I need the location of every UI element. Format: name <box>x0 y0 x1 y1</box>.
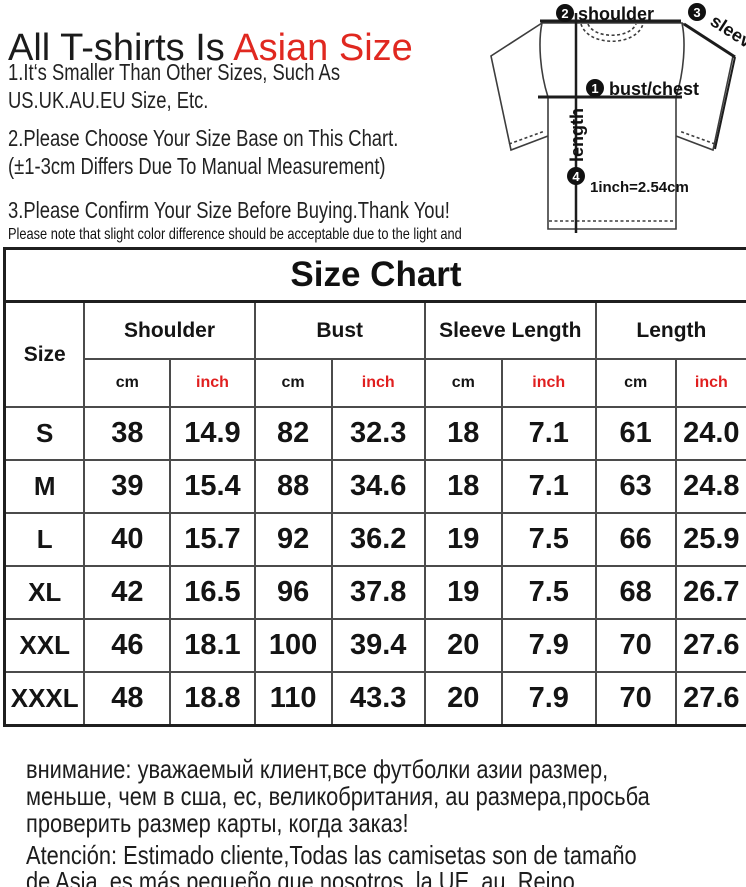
data-cell: 27.6 <box>676 672 746 724</box>
unit-inch-header: inch <box>170 359 254 407</box>
note-2: 2.Please Choose Your Size Base on This C… <box>8 124 488 180</box>
size-row-xxxl: XXXL 48 18.8 110 43.3 20 7.9 70 27.6 <box>6 672 746 724</box>
data-cell: 18 <box>425 407 502 460</box>
data-cell: 18 <box>425 460 502 513</box>
data-cell: 18.1 <box>170 619 254 672</box>
data-cell: 25.9 <box>676 513 746 566</box>
data-cell: 24.8 <box>676 460 746 513</box>
unit-cm-header: cm <box>425 359 502 407</box>
size-row-s: S 38 14.9 82 32.3 18 7.1 61 24.0 <box>6 407 746 460</box>
data-cell: 46 <box>84 619 170 672</box>
data-cell: 19 <box>425 566 502 619</box>
size-chart-title: Size Chart <box>6 250 746 303</box>
unit-cm-header: cm <box>596 359 676 407</box>
shoulder-group-header: Shoulder <box>84 303 254 359</box>
inch-conversion-note: 1inch=2.54cm <box>590 179 689 196</box>
data-cell: 7.1 <box>502 407 596 460</box>
callout-4-number: 4 <box>572 169 580 184</box>
size-chart-box: Size Chart Size Shoulder Bust Sleeve Len… <box>3 247 746 727</box>
bust-group-header: Bust <box>255 303 425 359</box>
data-cell: 48 <box>84 672 170 724</box>
sleeve-length-group-header: Sleeve Length <box>425 303 596 359</box>
data-cell: 40 <box>84 513 170 566</box>
data-cell: 66 <box>596 513 676 566</box>
data-cell: 43.3 <box>332 672 425 724</box>
data-cell: 19 <box>425 513 502 566</box>
data-cell: 42 <box>84 566 170 619</box>
tshirt-diagram-drawing: 2 shoulder 3 sleeve 1 bust/chest 4 lengt… <box>478 0 746 243</box>
data-cell: 15.4 <box>170 460 254 513</box>
data-cell: 100 <box>255 619 332 672</box>
size-column-header: Size <box>6 303 84 407</box>
callout-2-number: 2 <box>561 6 568 21</box>
size-chart-infographic: All T-shirts Is Asian Size 1.It‘s Smalle… <box>0 0 746 887</box>
data-cell: 7.5 <box>502 566 596 619</box>
size-row-l: L 40 15.7 92 36.2 19 7.5 66 25.9 <box>6 513 746 566</box>
note-1: 1.It‘s Smaller Than Other Sizes, Such As… <box>8 58 488 114</box>
data-cell: 20 <box>425 619 502 672</box>
data-cell: 18.8 <box>170 672 254 724</box>
tshirt-measurement-diagram: 2 shoulder 3 sleeve 1 bust/chest 4 lengt… <box>478 0 746 243</box>
data-cell: 7.9 <box>502 619 596 672</box>
size-label-cell: XXL <box>6 619 84 672</box>
unit-inch-header: inch <box>502 359 596 407</box>
length-label: length <box>567 108 587 162</box>
data-cell: 82 <box>255 407 332 460</box>
data-cell: 7.5 <box>502 513 596 566</box>
unit-cm-header: cm <box>84 359 170 407</box>
tshirt-outline <box>491 23 733 229</box>
data-cell: 34.6 <box>332 460 425 513</box>
data-cell: 36.2 <box>332 513 425 566</box>
size-row-xxl: XXL 46 18.1 100 39.4 20 7.9 70 27.6 <box>6 619 746 672</box>
length-group-header: Length <box>596 303 746 359</box>
unit-cm-header: cm <box>255 359 332 407</box>
unit-inch-header: inch <box>676 359 746 407</box>
data-cell: 27.6 <box>676 619 746 672</box>
size-label-cell: S <box>6 407 84 460</box>
data-cell: 26.7 <box>676 566 746 619</box>
data-cell: 15.7 <box>170 513 254 566</box>
spanish-notice: Atención: Estimado cliente,Todas las cam… <box>26 842 746 887</box>
data-cell: 16.5 <box>170 566 254 619</box>
data-cell: 68 <box>596 566 676 619</box>
size-row-xl: XL 42 16.5 96 37.8 19 7.5 68 26.7 <box>6 566 746 619</box>
data-cell: 96 <box>255 566 332 619</box>
data-cell: 14.9 <box>170 407 254 460</box>
data-cell: 37.8 <box>332 566 425 619</box>
note-3: 3.Please Confirm Your Size Before Buying… <box>8 196 488 224</box>
data-cell: 20 <box>425 672 502 724</box>
data-cell: 39 <box>84 460 170 513</box>
data-cell: 110 <box>255 672 332 724</box>
data-cell: 32.3 <box>332 407 425 460</box>
size-label-cell: XL <box>6 566 84 619</box>
data-cell: 38 <box>84 407 170 460</box>
callout-1-number: 1 <box>591 81 598 96</box>
bust-chest-label: bust/chest <box>609 79 699 99</box>
size-label-cell: XXXL <box>6 672 84 724</box>
shoulder-label: shoulder <box>578 4 654 24</box>
callout-3-number: 3 <box>693 5 700 20</box>
data-cell: 88 <box>255 460 332 513</box>
data-cell: 61 <box>596 407 676 460</box>
data-cell: 7.9 <box>502 672 596 724</box>
size-label-cell: M <box>6 460 84 513</box>
size-label-cell: L <box>6 513 84 566</box>
data-cell: 92 <box>255 513 332 566</box>
russian-notice: внимание: уважаемый клиент,все футболки … <box>26 756 746 837</box>
data-cell: 7.1 <box>502 460 596 513</box>
unit-inch-header: inch <box>332 359 425 407</box>
data-cell: 70 <box>596 619 676 672</box>
size-row-m: M 39 15.4 88 34.6 18 7.1 63 24.8 <box>6 460 746 513</box>
size-chart-table: Size Shoulder Bust Sleeve Length Length … <box>6 303 746 724</box>
data-cell: 39.4 <box>332 619 425 672</box>
data-cell: 70 <box>596 672 676 724</box>
data-cell: 24.0 <box>676 407 746 460</box>
data-cell: 63 <box>596 460 676 513</box>
intro-notes: 1.It‘s Smaller Than Other Sizes, Such As… <box>8 58 488 262</box>
